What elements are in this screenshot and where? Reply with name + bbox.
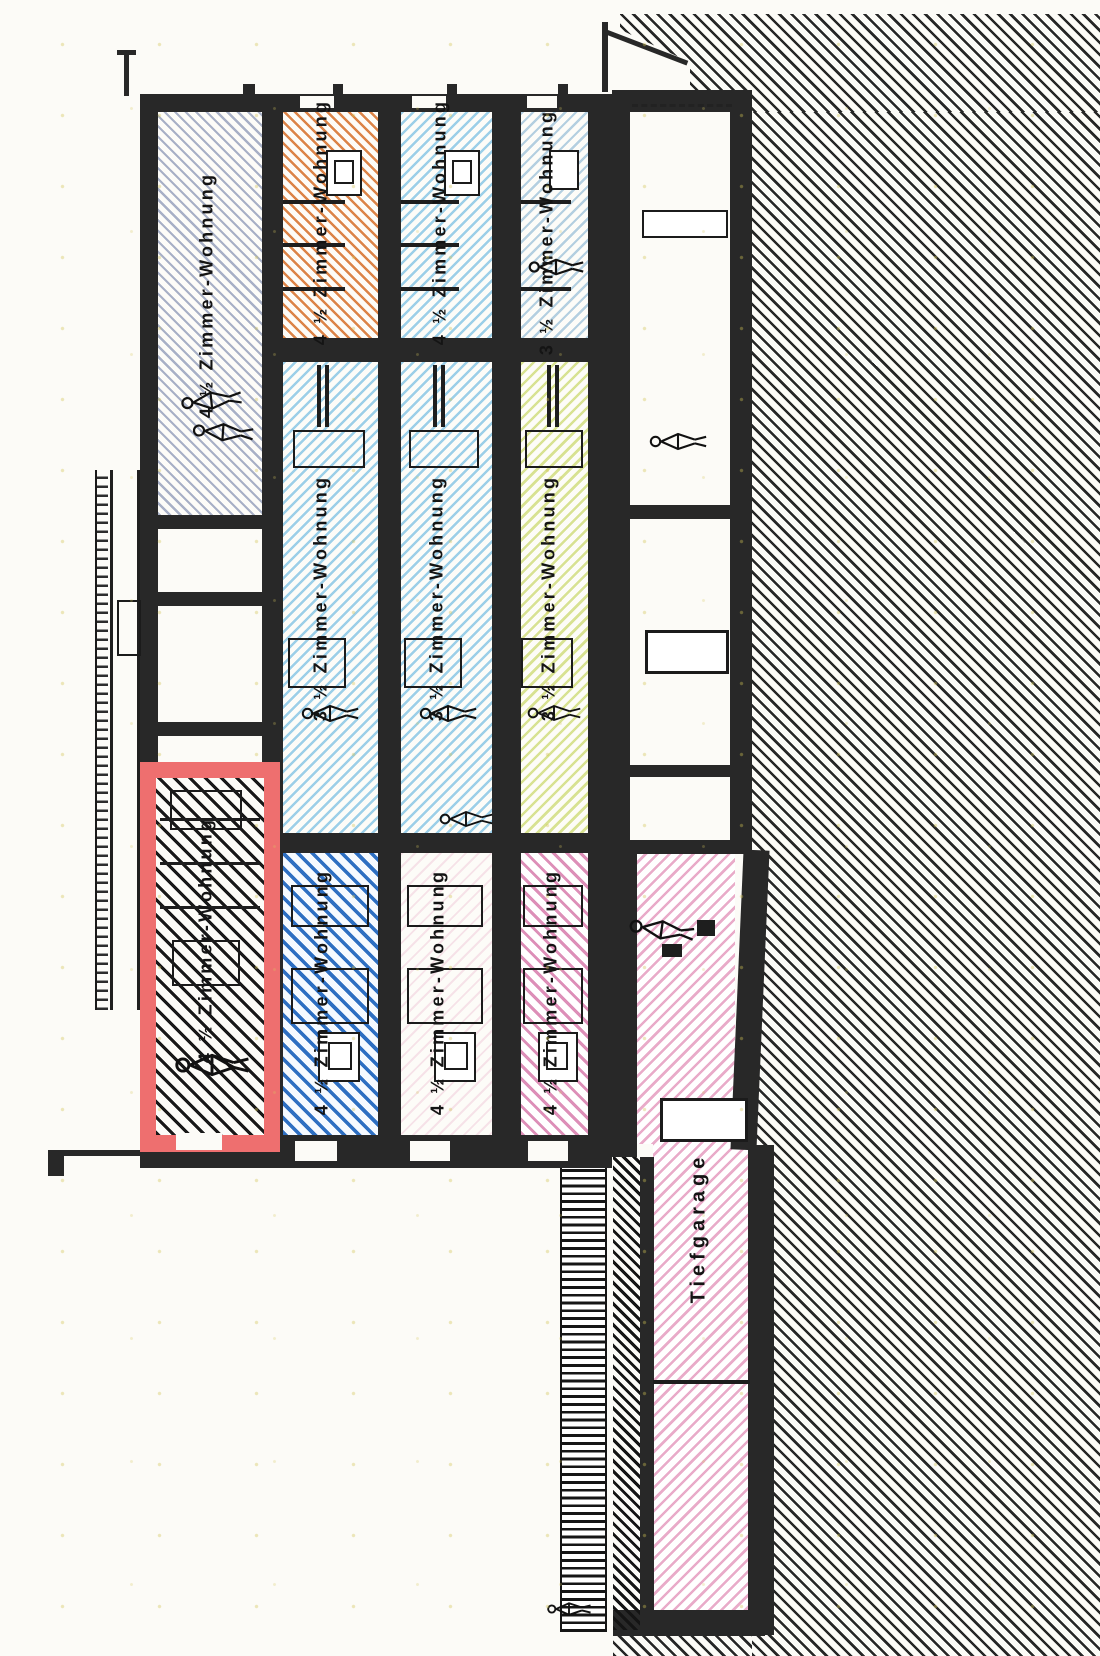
roof-bump	[558, 84, 568, 96]
wall	[612, 852, 637, 1157]
balcony-slab	[110, 470, 140, 1010]
wall	[748, 1145, 774, 1635]
fixture	[452, 160, 472, 184]
basement-window	[176, 1133, 222, 1150]
wall	[588, 96, 612, 1142]
unit-red-label: 4 ½ Zimmer-Wohnung	[196, 817, 217, 1063]
chimney-edge	[602, 22, 608, 92]
wall	[378, 96, 401, 1142]
unit-b1-label: 4 ½ Zimmer-Wohnung	[311, 99, 332, 345]
duct	[555, 365, 559, 427]
wall	[640, 1157, 654, 1612]
wall	[492, 96, 521, 1142]
roof-bump	[243, 84, 255, 96]
wall	[630, 765, 730, 777]
floor-slab	[158, 515, 262, 529]
roof-notch	[527, 96, 557, 108]
unit-b2-label: 3 ½ Zimmer-Wohnung	[311, 475, 332, 721]
unit-c1-label: 4 ½ Zimmer-Wohnung	[430, 99, 451, 345]
fixture	[409, 430, 479, 468]
roof-bump	[447, 84, 457, 96]
antenna-mast	[117, 50, 136, 55]
room	[158, 529, 262, 592]
floor-slab	[158, 592, 262, 606]
terrain-step	[48, 1150, 64, 1176]
unit-c2-label: 3 ½ Zimmer-Wohnung	[427, 475, 448, 721]
unit-b3-label: 4 ½ Zimmer-Wohnung	[312, 869, 333, 1115]
roof-dashed-line	[632, 104, 732, 107]
window-band	[642, 210, 728, 238]
ramp-box	[660, 1098, 748, 1142]
basement-window	[295, 1141, 337, 1161]
unit-c3-label: 4 ½ Zimmer-Wohnung	[428, 869, 449, 1115]
duct	[433, 365, 437, 427]
duct	[547, 365, 551, 427]
duct	[441, 365, 445, 427]
terrain-line	[52, 1150, 142, 1156]
antenna-mast	[124, 54, 129, 96]
fixture	[334, 160, 354, 184]
luggage	[662, 944, 682, 957]
unit-d3-label: 4 ½ Zimmer-Wohnung	[541, 869, 562, 1115]
unit-d2-label: 3 ½ Zimmer-Wohnung	[539, 475, 560, 721]
ramp-stairs	[560, 1160, 607, 1632]
floor-plan-drawing: 4 ½ Zimmer-Wohnung 4 ½ Zimmer-Wohnung 4 …	[0, 0, 1100, 1656]
ground-hatch	[752, 112, 1100, 1656]
unit-d1-label: 3 ½ Zimmer-Wohnung	[537, 109, 558, 355]
floor-slab	[262, 833, 612, 853]
retaining-wall-hatch	[613, 1157, 640, 1630]
duct	[325, 365, 329, 427]
tiefgarage-label: Tiefgarage	[688, 1153, 711, 1304]
fixture	[293, 430, 365, 468]
basement-window	[410, 1141, 450, 1161]
duct	[317, 365, 321, 427]
wall	[630, 505, 730, 519]
unit-a1-label: 4 ½ Zimmer-Wohnung	[197, 172, 218, 418]
luggage	[697, 920, 715, 936]
floor-slab	[158, 722, 262, 736]
wall	[612, 112, 630, 852]
fixture	[525, 430, 583, 468]
room	[158, 606, 262, 722]
roof-bump	[333, 84, 343, 96]
basement-window	[528, 1141, 568, 1161]
garage-joint	[653, 1380, 750, 1384]
window-band	[645, 630, 729, 674]
balcony-window	[117, 600, 141, 656]
wall	[730, 112, 752, 852]
ground-hatch	[613, 1636, 752, 1656]
balcony-railing	[95, 470, 108, 1010]
roof-band	[612, 90, 752, 112]
